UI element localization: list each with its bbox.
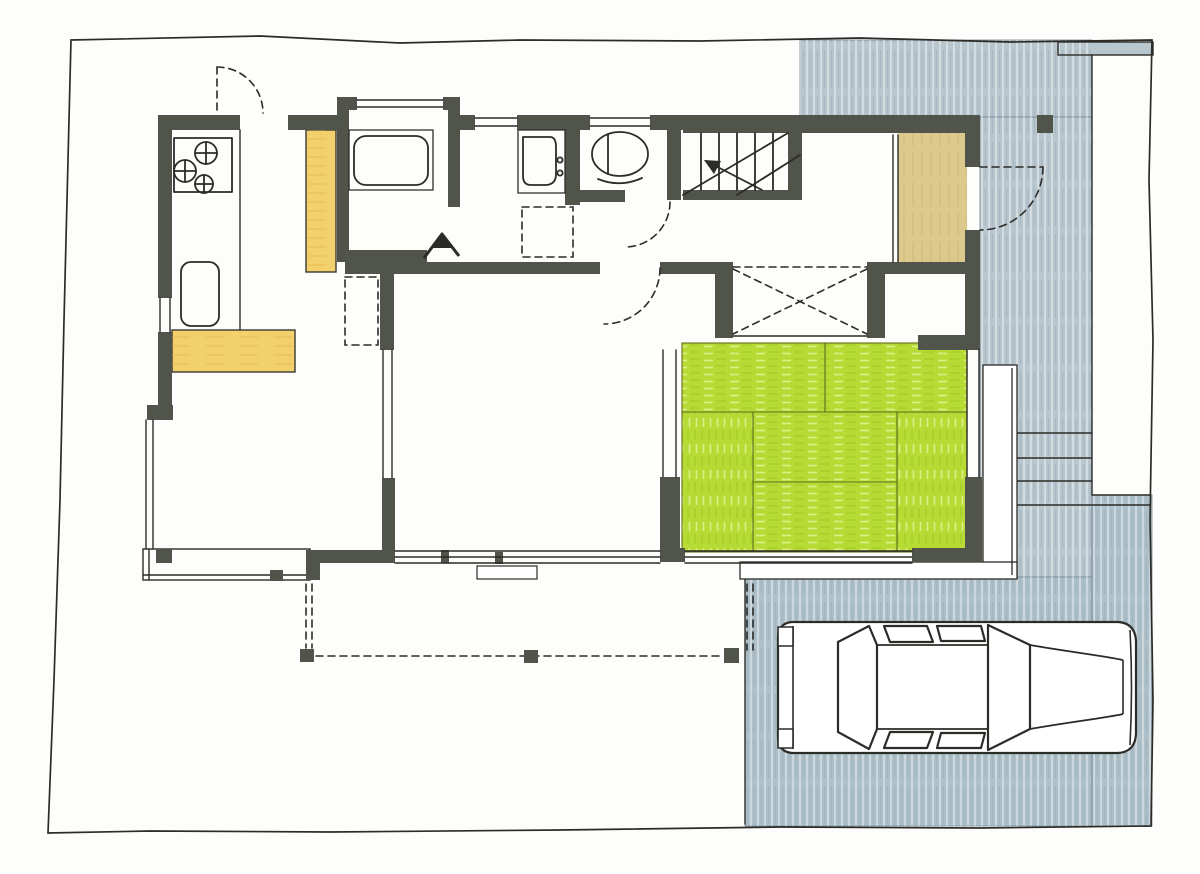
car-side-window [937, 626, 985, 641]
toilet [592, 132, 648, 183]
car-rear-window [838, 626, 877, 749]
kitchen-sink [181, 262, 219, 326]
bathtub [349, 130, 433, 190]
bathroom-folding-door [424, 234, 459, 258]
washbasin [518, 130, 565, 193]
step-stone [477, 566, 537, 579]
genkan-texture [898, 133, 967, 262]
staircase [683, 133, 800, 195]
eave-outline [306, 584, 753, 656]
car-top-view [778, 622, 1136, 753]
kitchen-stove [174, 138, 232, 193]
car-side-window [884, 732, 933, 748]
counter-texture [172, 130, 336, 372]
floor-plan-drawing [0, 0, 1200, 874]
gate-post [1037, 115, 1053, 133]
closet-with-cross [733, 267, 867, 334]
tatami-room [682, 343, 967, 552]
car-side-window [884, 626, 933, 642]
car-side-window [937, 733, 985, 748]
washing-machine-pads [345, 207, 573, 345]
car-windshield [988, 625, 1030, 750]
floor-plan-page [0, 0, 1200, 874]
